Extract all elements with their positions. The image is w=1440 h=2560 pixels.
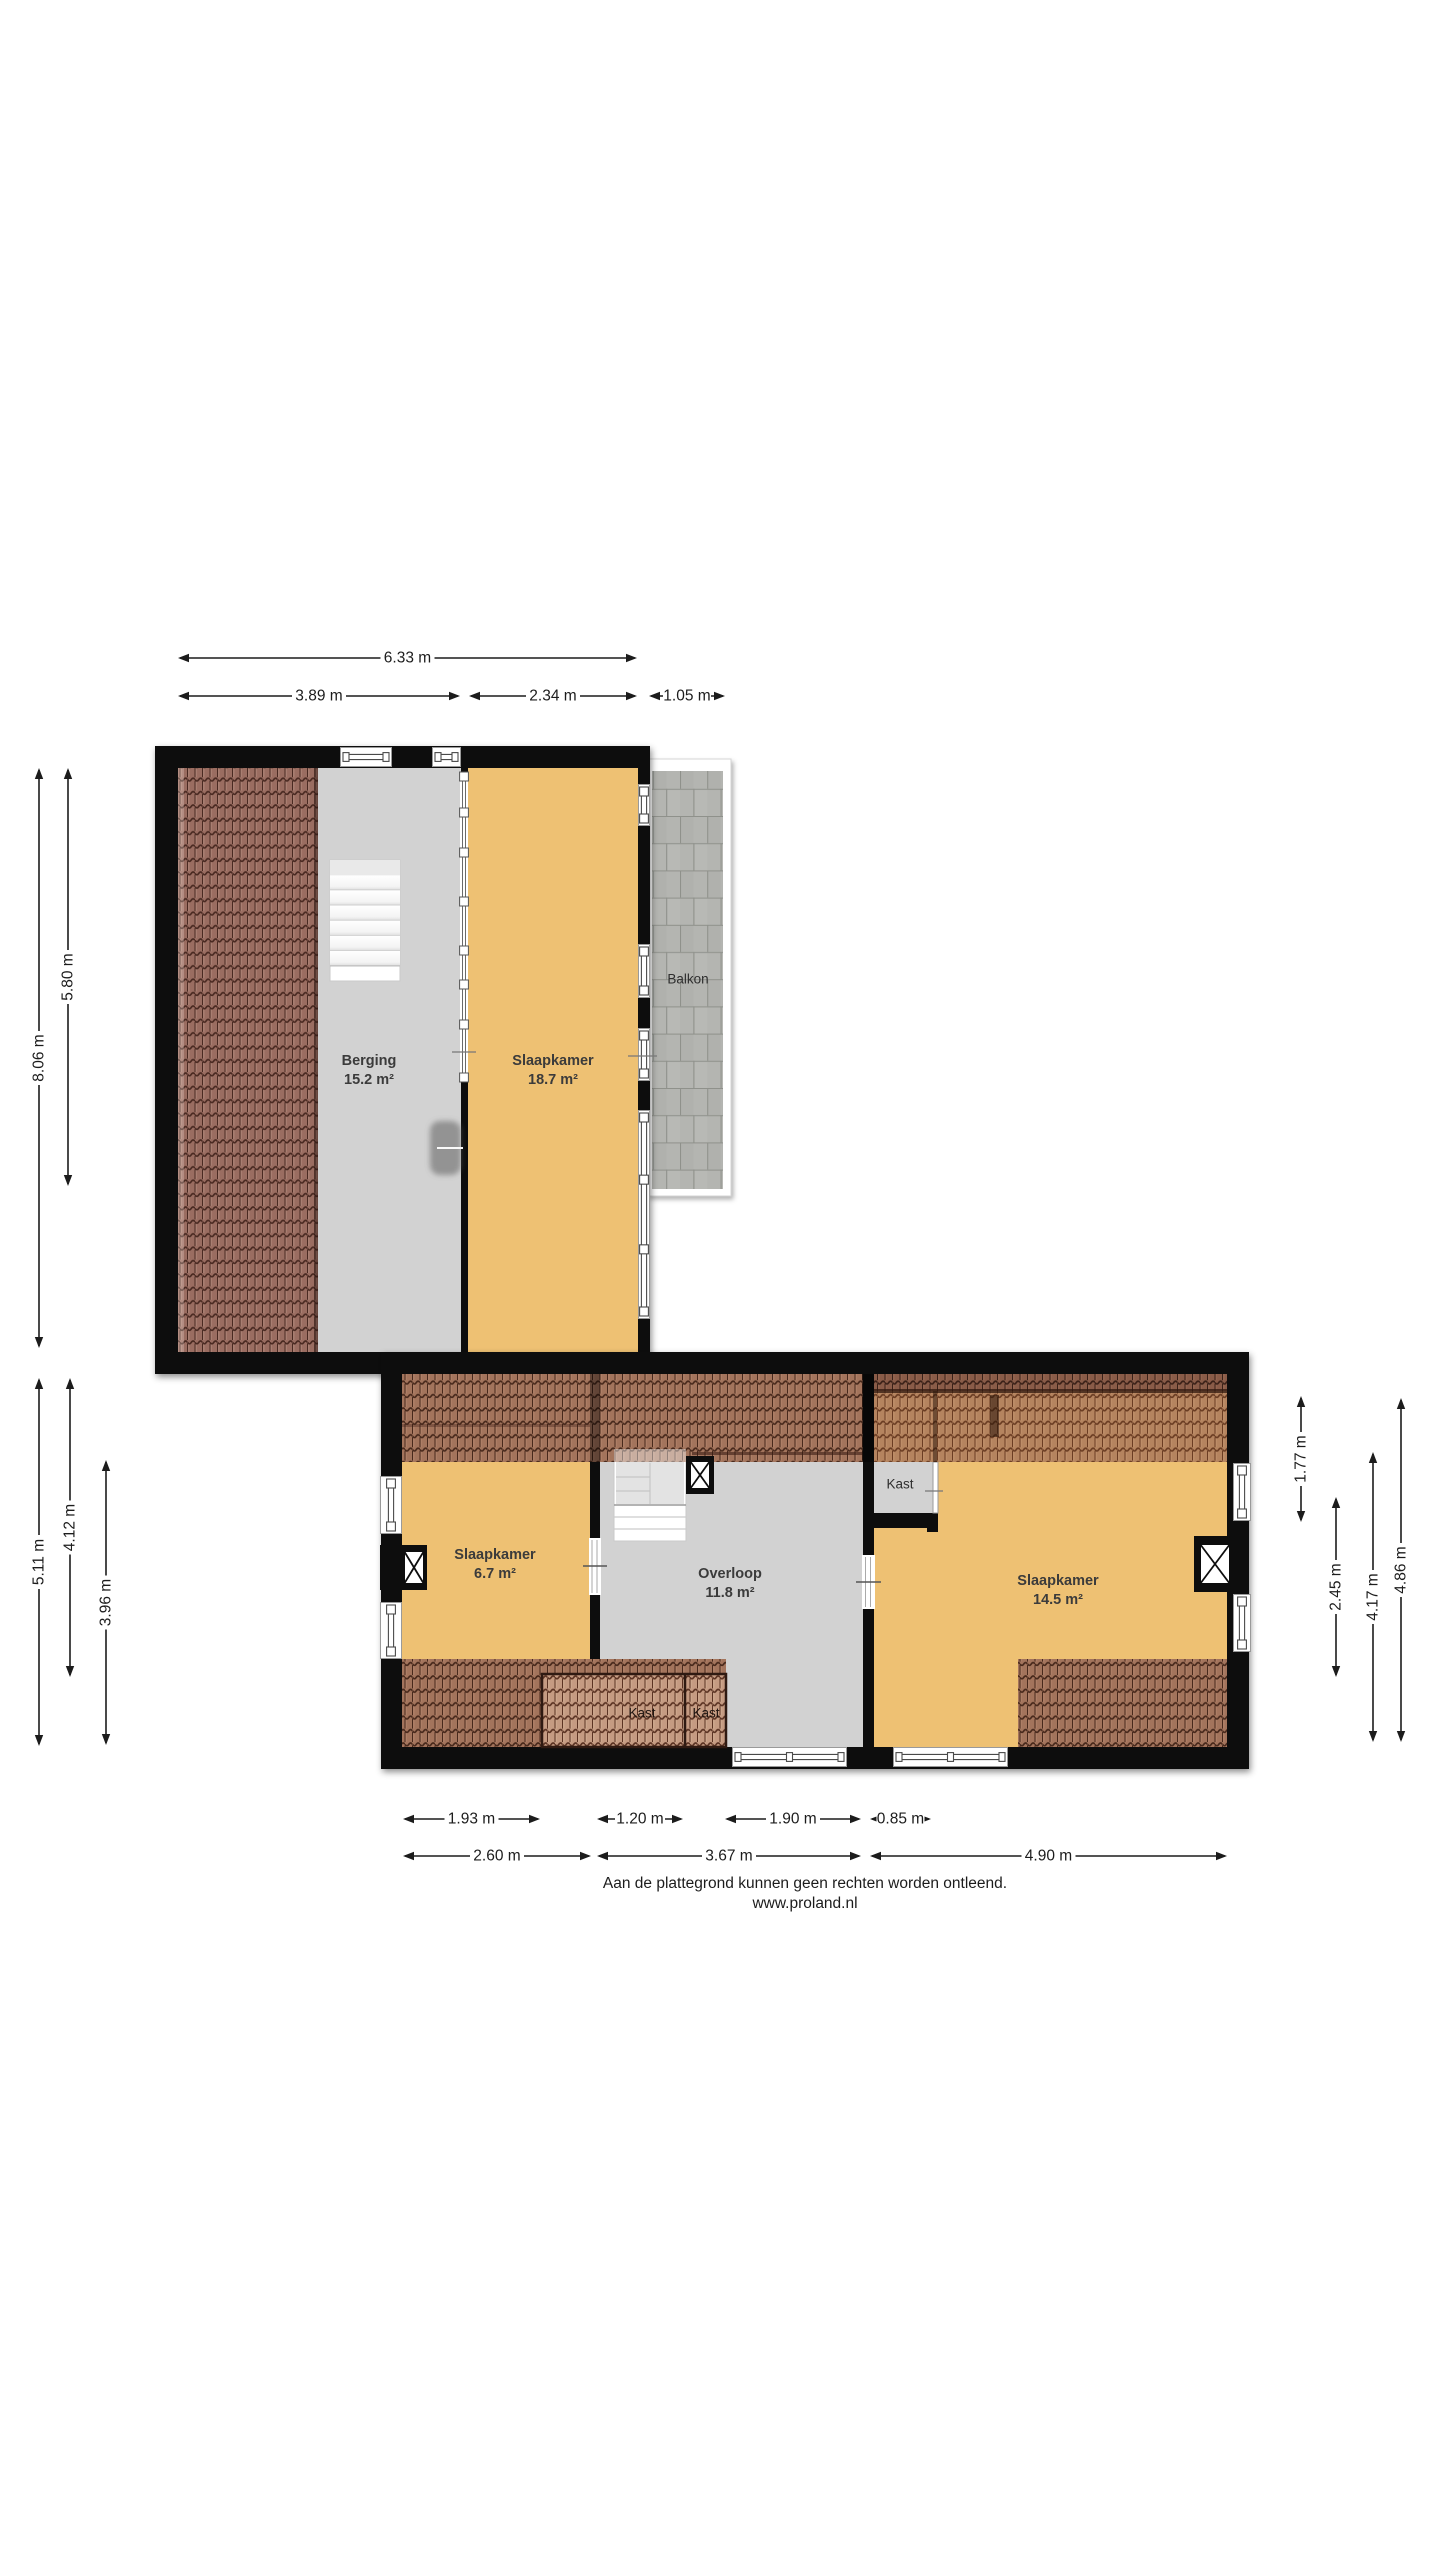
svg-text:3.89 m: 3.89 m: [295, 688, 342, 705]
svg-text:Slaapkamer: Slaapkamer: [512, 1053, 594, 1069]
svg-text:www.proland.nl: www.proland.nl: [751, 1895, 857, 1912]
svg-text:3.67 m: 3.67 m: [705, 1848, 752, 1865]
svg-text:Kast: Kast: [692, 1706, 719, 1721]
svg-text:Slaapkamer: Slaapkamer: [1017, 1573, 1099, 1589]
svg-text:Overloop: Overloop: [698, 1566, 762, 1582]
svg-text:14.5 m²: 14.5 m²: [1033, 1592, 1083, 1608]
svg-text:4.90 m: 4.90 m: [1025, 1848, 1072, 1865]
svg-text:2.45 m: 2.45 m: [1328, 1563, 1345, 1610]
svg-text:Kast: Kast: [628, 1706, 655, 1721]
svg-text:Slaapkamer: Slaapkamer: [454, 1547, 536, 1563]
svg-text:2.34 m: 2.34 m: [529, 688, 576, 705]
svg-text:18.7 m²: 18.7 m²: [528, 1072, 578, 1088]
svg-text:3.96 m: 3.96 m: [98, 1579, 115, 1626]
svg-text:1.77 m: 1.77 m: [1293, 1435, 1310, 1482]
svg-text:6.33 m: 6.33 m: [384, 650, 431, 667]
svg-text:Aan de plattegrond kunnen geen: Aan de plattegrond kunnen geen rechten w…: [603, 1875, 1007, 1892]
svg-text:5.80 m: 5.80 m: [60, 953, 77, 1000]
svg-text:2.60 m: 2.60 m: [473, 1848, 520, 1865]
svg-text:1.20 m: 1.20 m: [616, 1811, 663, 1828]
svg-text:4.86 m: 4.86 m: [1393, 1546, 1410, 1593]
svg-text:11.8 m²: 11.8 m²: [705, 1585, 754, 1601]
svg-text:Berging: Berging: [342, 1053, 397, 1069]
svg-text:4.12 m: 4.12 m: [62, 1504, 79, 1551]
svg-text:Balkon: Balkon: [667, 972, 708, 987]
svg-text:0.85 m: 0.85 m: [877, 1811, 924, 1828]
svg-text:1.93 m: 1.93 m: [448, 1811, 495, 1828]
svg-text:4.17 m: 4.17 m: [1365, 1573, 1382, 1620]
svg-text:Kast: Kast: [886, 1477, 913, 1492]
svg-text:15.2 m²: 15.2 m²: [344, 1072, 394, 1088]
svg-text:1.05 m: 1.05 m: [663, 688, 710, 705]
svg-text:8.06 m: 8.06 m: [31, 1034, 48, 1081]
svg-text:5.11 m: 5.11 m: [31, 1539, 48, 1585]
svg-text:6.7 m²: 6.7 m²: [474, 1566, 516, 1582]
svg-text:1.90 m: 1.90 m: [769, 1811, 816, 1828]
